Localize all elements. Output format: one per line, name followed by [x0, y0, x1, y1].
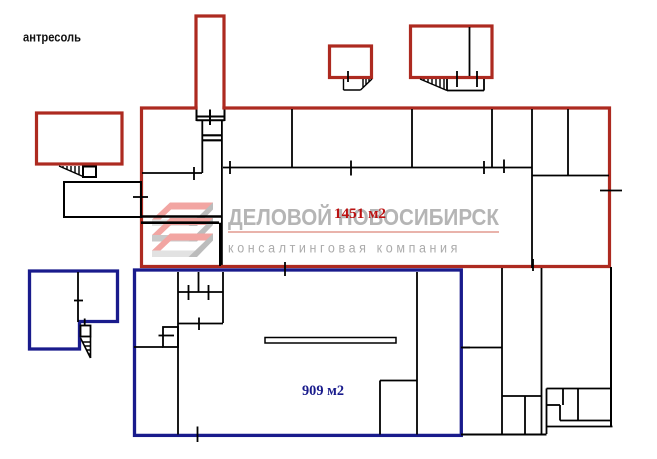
svg-text:909 м2: 909 м2: [302, 383, 344, 399]
svg-text:консалтинговая компания: консалтинговая компания: [228, 240, 461, 256]
svg-text:антресоль: антресоль: [23, 31, 81, 45]
svg-text:1451 м2: 1451 м2: [334, 206, 386, 222]
